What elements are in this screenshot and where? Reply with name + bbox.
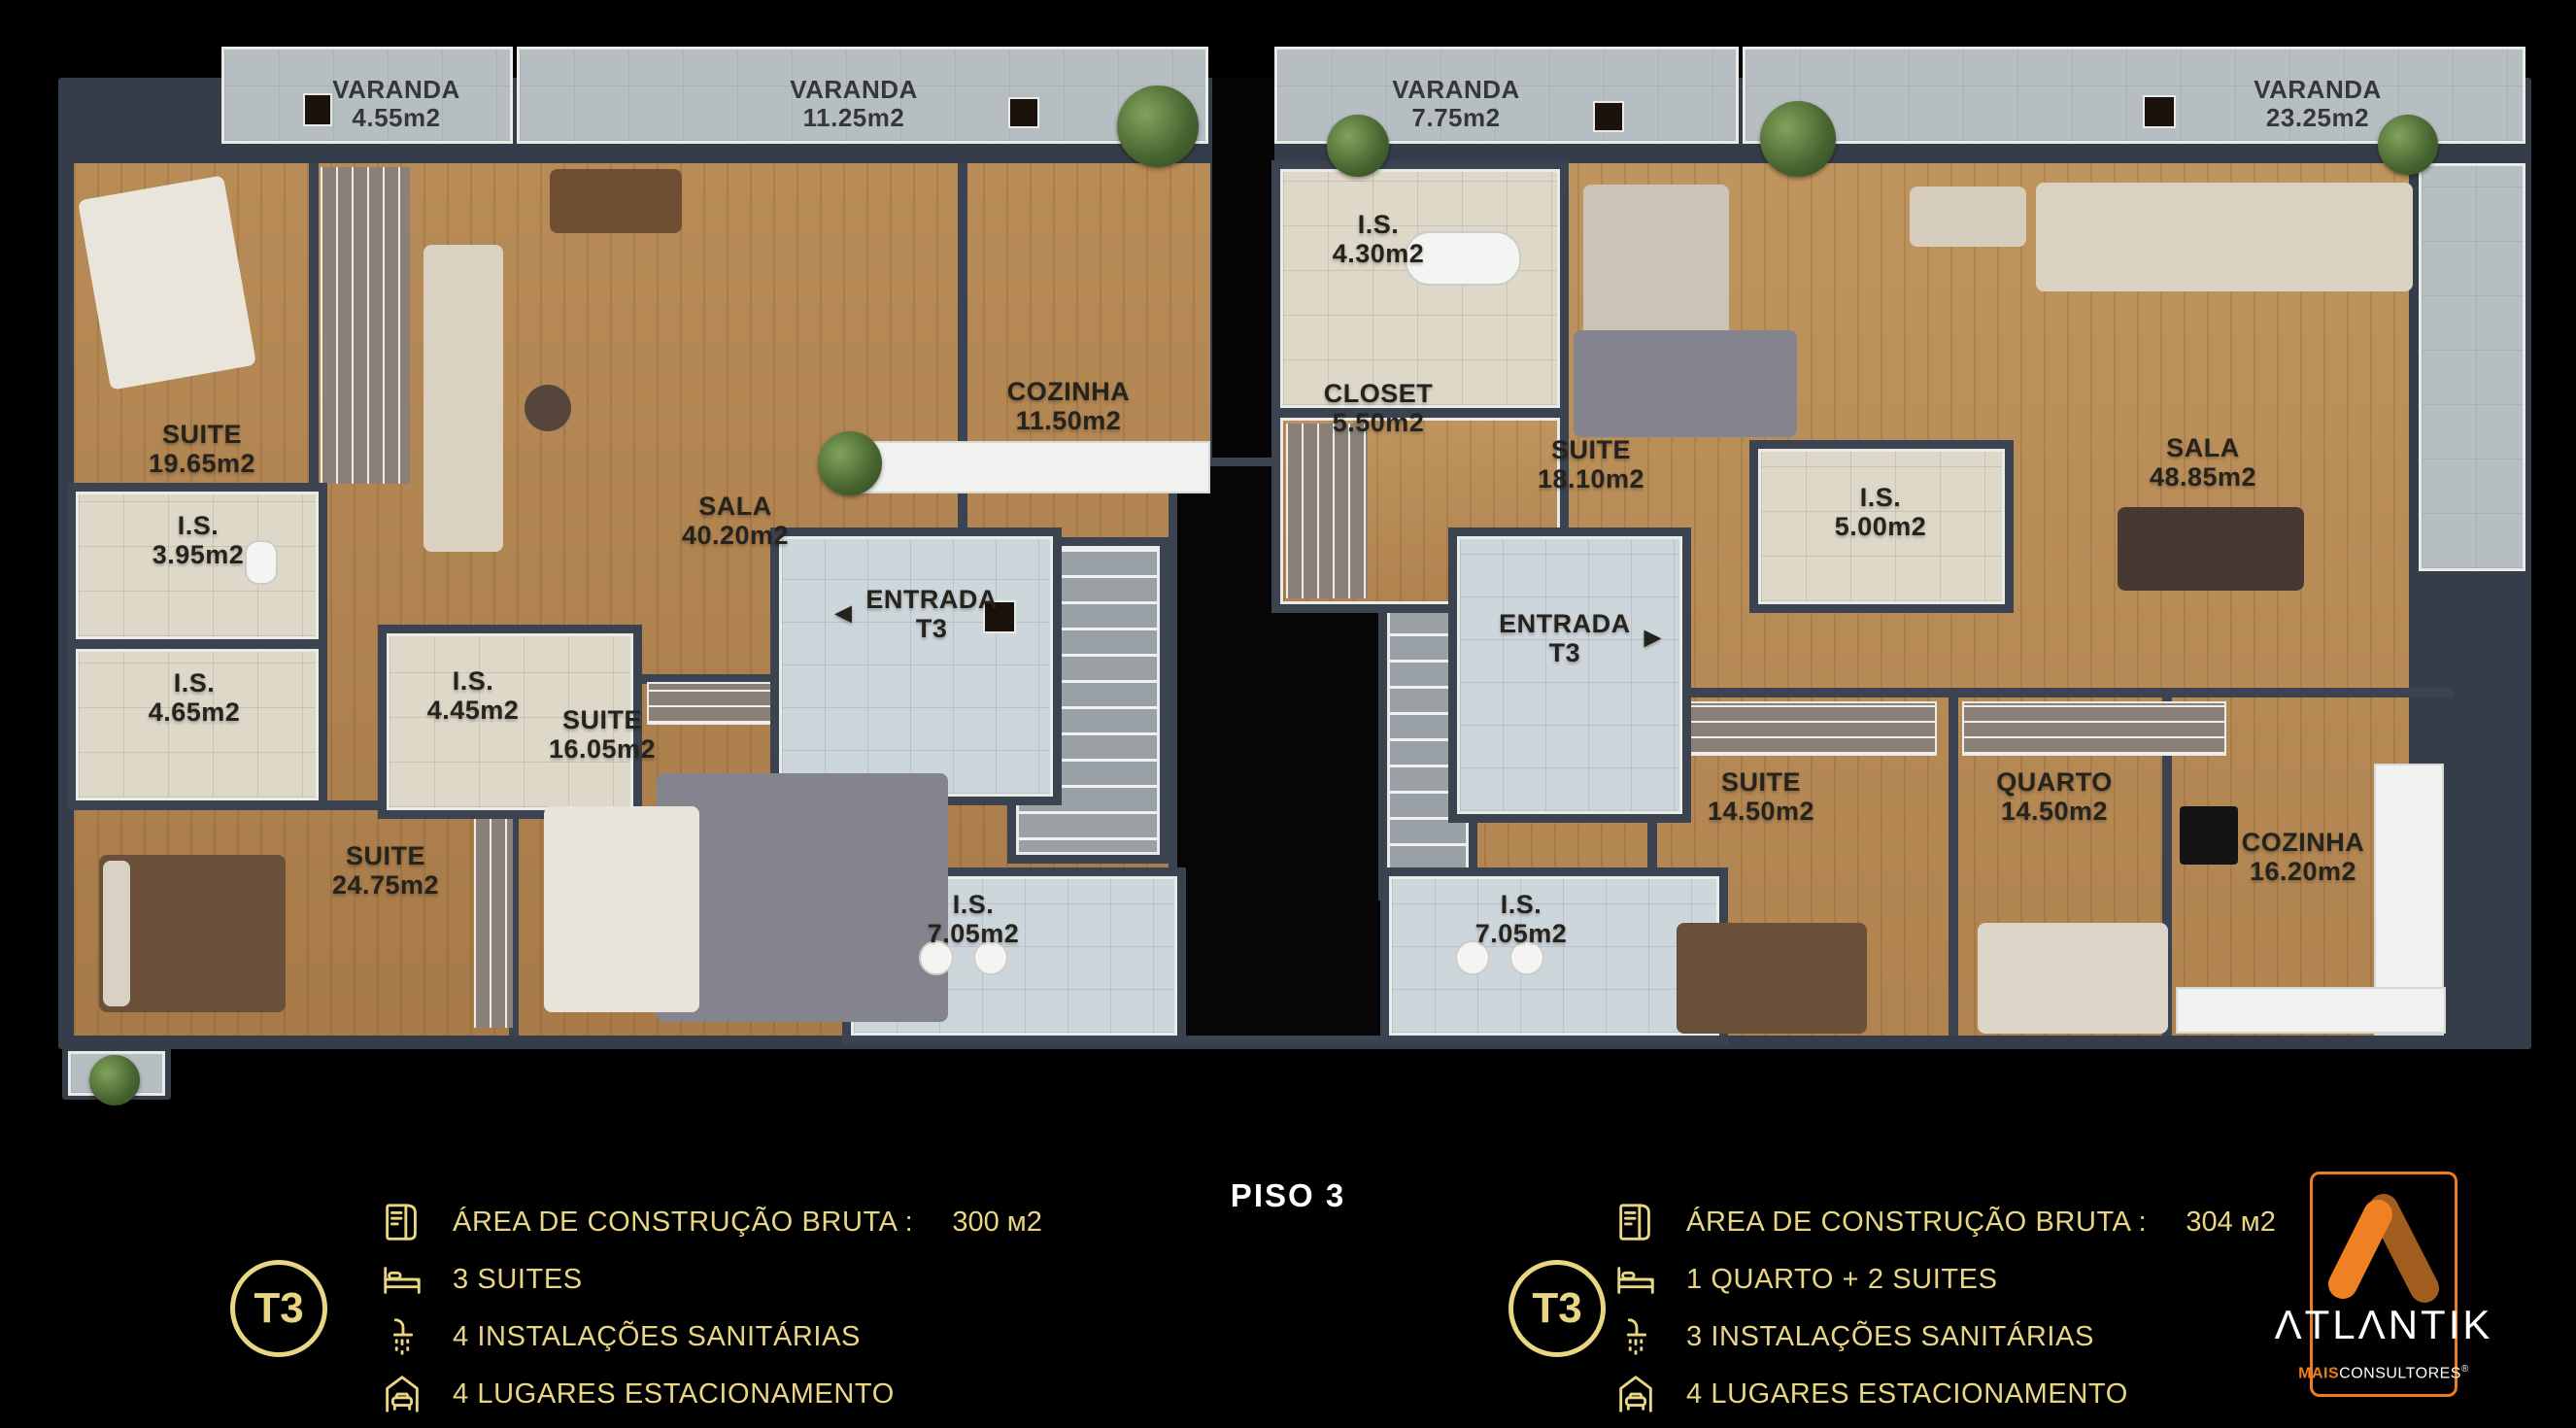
legend-row: 4 LUGARES ESTACIONAMENTO: [379, 1369, 895, 1419]
wardrobe: [321, 167, 410, 484]
room-area: 5.50m2: [1324, 408, 1434, 437]
legend-row: 1 QUARTO + 2 SUITES: [1612, 1254, 1998, 1305]
room-area: 4.45m2: [427, 696, 520, 725]
floor-plan-poster: VARANDA4.55m2 VARANDA11.25m2 VARANDA7.75…: [0, 0, 2576, 1428]
wardrobe: [1661, 701, 1937, 756]
room-area: 7.75m2: [1392, 104, 1520, 132]
room-name: I.S.: [149, 668, 241, 697]
room-name: I.S.: [427, 666, 520, 696]
toilet: [245, 540, 278, 585]
wardrobe: [474, 808, 513, 1028]
room-label: I.S.4.30m2: [1333, 210, 1425, 268]
plant: [818, 431, 882, 495]
entrance-word: ENTRADA: [1499, 609, 1631, 638]
legend-label: 4 INSTALAÇÕES SANITÁRIAS: [453, 1321, 861, 1353]
blueprint-icon: [379, 1199, 425, 1245]
room-label: I.S.3.95m2: [153, 511, 245, 569]
legend-row: 4 LUGARES ESTACIONAMENTO: [1612, 1369, 2128, 1419]
wall: [1647, 688, 2454, 697]
room-label: COZINHA11.50m2: [1007, 377, 1131, 435]
sofa: [424, 245, 503, 552]
plant: [1117, 85, 1199, 167]
room-name: SUITE: [332, 841, 439, 870]
dining-table-left: [550, 169, 682, 233]
room-name: I.S.: [928, 890, 1020, 919]
room-name: VARANDA: [332, 76, 460, 104]
room-label: SALA48.85m2: [2150, 433, 2256, 492]
sofa: [2036, 183, 2413, 291]
typology-badge-left: T3: [230, 1260, 327, 1357]
room-label: I.S.7.05m2: [928, 890, 1020, 948]
room-area: 11.25m2: [790, 104, 918, 132]
rug: [1574, 330, 1797, 437]
kitchen-counter-right-2: [2176, 987, 2446, 1034]
room-area: 19.65m2: [149, 449, 255, 478]
bed-icon: [379, 1256, 425, 1303]
varanda-label: VARANDA11.25m2: [790, 76, 918, 132]
room-name: I.S.: [1835, 483, 1927, 512]
room-name: SUITE: [549, 705, 656, 734]
room-entrada-right: [1457, 536, 1682, 814]
plant: [2378, 115, 2438, 175]
legend-row: 3 INSTALAÇÕES SANITÁRIAS: [1612, 1311, 2094, 1362]
room-label: I.S.7.05m2: [1475, 890, 1568, 948]
shower-icon: [379, 1313, 425, 1360]
entrance-text: ENTRADAT3: [865, 585, 998, 643]
room-area: 16.05m2: [549, 734, 656, 764]
legend-value: 304 м2: [2186, 1207, 2276, 1239]
legend-label: 4 LUGARES ESTACIONAMENTO: [1686, 1378, 2128, 1411]
room-area: 4.55m2: [332, 104, 460, 132]
legend-label: 1 QUARTO + 2 SUITES: [1686, 1264, 1998, 1296]
room-area: 18.10m2: [1538, 464, 1644, 493]
legend-label: 4 LUGARES ESTACIONAMENTO: [453, 1378, 895, 1411]
rug: [657, 773, 948, 1022]
varanda-side-terrace: [2419, 163, 2525, 571]
brand-name: ΛTLΛNTIK: [2275, 1302, 2493, 1348]
brand-subtitle-bold: MAIS: [2298, 1365, 2339, 1381]
deco-box: [2143, 95, 2176, 128]
brand-subtitle: MAISCONSULTORES®: [2298, 1364, 2469, 1382]
entrance-text: ENTRADAT3: [1499, 609, 1631, 667]
page-title: PISO 3: [1231, 1177, 1345, 1214]
plant: [89, 1055, 140, 1105]
bed: [544, 806, 699, 1012]
ottoman: [1910, 187, 2026, 247]
room-name: SUITE: [1538, 435, 1644, 464]
room-entrada-left: [779, 536, 1053, 797]
room-area: 40.20m2: [682, 521, 789, 550]
room-label: SUITE14.50m2: [1708, 767, 1814, 826]
room-name: SUITE: [1708, 767, 1814, 797]
room-name: SALA: [2150, 433, 2256, 462]
entrance-unit: T3: [1499, 638, 1631, 667]
blueprint-icon: [1612, 1199, 1659, 1245]
entrance-word: ENTRADA: [865, 585, 998, 614]
stove: [2180, 806, 2238, 865]
room-name: VARANDA: [790, 76, 918, 104]
bed-icon: [1612, 1256, 1659, 1303]
legend-label: 3 SUITES: [453, 1264, 583, 1296]
wall: [309, 163, 319, 486]
room-area: 16.20m2: [2242, 857, 2365, 886]
car-icon: [1612, 1371, 1659, 1417]
legend-label: 3 INSTALAÇÕES SANITÁRIAS: [1686, 1321, 2094, 1353]
deco-box: [1008, 97, 1039, 128]
room-name: I.S.: [1475, 890, 1568, 919]
building-gap: [1212, 78, 1274, 459]
room-area: 14.50m2: [1996, 797, 2113, 826]
entrance-label-left: ◄ ENTRADAT3: [829, 585, 998, 643]
coffee-table: [525, 385, 571, 431]
entrance-arrow-right-icon: ►: [1639, 622, 1668, 655]
room-label: SUITE24.75m2: [332, 841, 439, 900]
plant: [1760, 101, 1836, 177]
room-area: 3.95m2: [153, 540, 245, 569]
brand-subtitle-rest: CONSULTORES: [2339, 1365, 2461, 1381]
legend-row: 4 INSTALAÇÕES SANITÁRIAS: [379, 1311, 861, 1362]
varanda-label: VARANDA7.75m2: [1392, 76, 1520, 132]
entrance-label-right: ENTRADAT3 ►: [1499, 609, 1668, 667]
deco-box: [1593, 101, 1624, 132]
wardrobe: [1286, 424, 1368, 598]
room-name: SUITE: [149, 420, 255, 449]
legend-row: ÁREA DE CONSTRUÇÃO BRUTA : 304 м2: [1612, 1197, 2276, 1247]
car-icon: [379, 1371, 425, 1417]
room-area: 4.65m2: [149, 697, 241, 727]
brand-chevron-icon: [2323, 1187, 2444, 1308]
room-label: I.S.5.00m2: [1835, 483, 1927, 541]
room-area: 48.85m2: [2150, 462, 2256, 492]
room-area: 7.05m2: [1475, 919, 1568, 948]
room-label: I.S.4.65m2: [149, 668, 241, 727]
legend-value: 300 м2: [952, 1207, 1042, 1239]
room-area: 7.05m2: [928, 919, 1020, 948]
room-name: COZINHA: [1007, 377, 1131, 406]
varanda-label: VARANDA23.25m2: [2254, 76, 2382, 132]
room-name: CLOSET: [1324, 379, 1434, 408]
room-name: I.S.: [153, 511, 245, 540]
registered-mark: ®: [2461, 1364, 2469, 1375]
room-area: 23.25m2: [2254, 104, 2382, 132]
typology-badge-right: T3: [1508, 1260, 1606, 1357]
room-name: I.S.: [1333, 210, 1425, 239]
bed: [1978, 923, 2168, 1034]
legend-row: ÁREA DE CONSTRUÇÃO BRUTA : 300 м2: [379, 1197, 1042, 1247]
room-name: VARANDA: [1392, 76, 1520, 104]
room-label: COZINHA16.20m2: [2242, 828, 2365, 886]
shower-icon: [1612, 1313, 1659, 1360]
room-is-430: [1280, 169, 1560, 408]
room-name: SALA: [682, 492, 789, 521]
varanda-label: VARANDA4.55m2: [332, 76, 460, 132]
room-label: SUITE19.65m2: [149, 420, 255, 478]
room-label: SALA40.20m2: [682, 492, 789, 550]
room-label: SUITE18.10m2: [1538, 435, 1644, 493]
room-name: VARANDA: [2254, 76, 2382, 104]
room-label: CLOSET5.50m2: [1324, 379, 1434, 437]
room-label: I.S.4.45m2: [427, 666, 520, 725]
wall: [1949, 697, 1958, 1036]
entrance-unit: T3: [865, 614, 998, 643]
room-label: QUARTO14.50m2: [1996, 767, 2113, 826]
legend-label: ÁREA DE CONSTRUÇÃO BRUTA :: [453, 1207, 913, 1239]
bed: [1677, 923, 1867, 1034]
room-name: COZINHA: [2242, 828, 2365, 857]
room-name: QUARTO: [1996, 767, 2113, 797]
room-area: 24.75m2: [332, 870, 439, 900]
room-label: SUITE16.05m2: [549, 705, 656, 764]
bed-pillows: [103, 861, 130, 1006]
room-area: 14.50m2: [1708, 797, 1814, 826]
deco-box: [303, 93, 332, 126]
legend-row: 3 SUITES: [379, 1254, 583, 1305]
kitchen-counter-left: [847, 441, 1210, 493]
room-area: 11.50m2: [1007, 406, 1131, 435]
wardrobe: [1962, 701, 2226, 756]
entrance-arrow-left-icon: ◄: [829, 597, 858, 630]
room-area: 4.30m2: [1333, 239, 1425, 268]
dining-table-right: [2118, 507, 2304, 591]
plant: [1327, 115, 1389, 177]
legend-label: ÁREA DE CONSTRUÇÃO BRUTA :: [1686, 1207, 2147, 1239]
room-area: 5.00m2: [1835, 512, 1927, 541]
